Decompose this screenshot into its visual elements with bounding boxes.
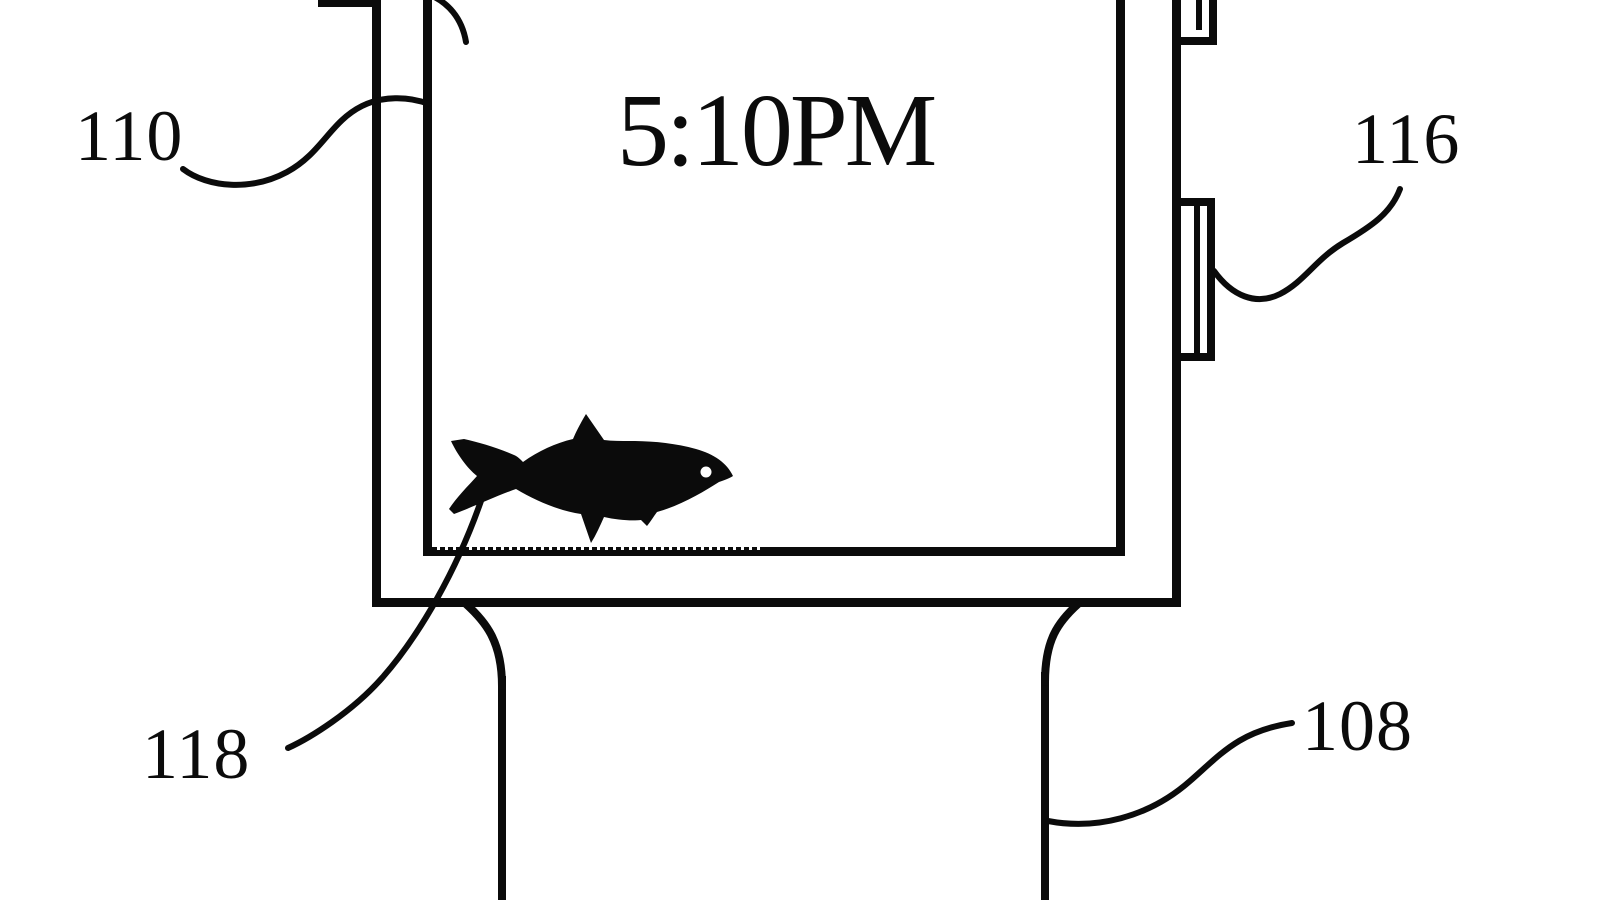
- patent-figure-smartwatch: 5:10PM 110 116 118 108: [0, 0, 1600, 900]
- ref-label-108: 108: [1302, 690, 1413, 762]
- fish-body: [449, 414, 733, 543]
- leader-line-110: [183, 98, 429, 185]
- leader-line-108: [1048, 723, 1292, 824]
- leader-line-118: [288, 498, 482, 748]
- time-display: 5:10PM: [617, 79, 934, 183]
- ref-label-118: 118: [142, 718, 250, 790]
- fish-icon: [449, 414, 733, 543]
- band-left-flare-curve: [466, 604, 502, 686]
- leader-line-116: [1214, 189, 1400, 299]
- fish-eye: [701, 467, 712, 478]
- ref-label-116: 116: [1352, 103, 1460, 175]
- band-right-flare-curve: [1045, 604, 1078, 682]
- top-leader-fragment: [428, 0, 466, 42]
- ref-label-110: 110: [75, 100, 183, 172]
